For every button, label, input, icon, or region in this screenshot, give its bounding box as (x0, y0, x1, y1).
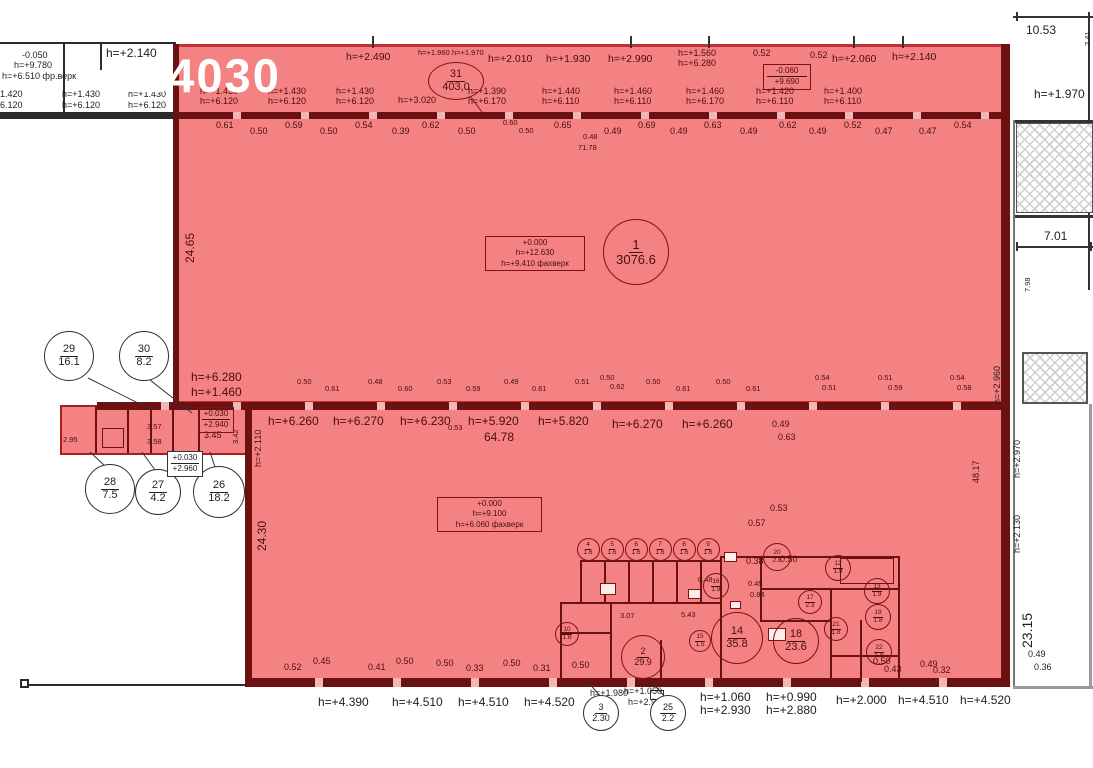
elevation-line: +0.030 (171, 453, 199, 464)
elevation-tag-box: +0.030+2.960 (167, 451, 203, 477)
elevation-tag-box: +0.030+2.940 (198, 407, 234, 433)
elevation-tag-box: +0.000h=+12.630h=+9.410 фахверк (485, 236, 585, 271)
elevation-line: +0.000 (441, 499, 538, 509)
watermark-text: 224030 (112, 48, 281, 103)
elevation-line: +0.030 (202, 409, 230, 420)
elevation-line: +2.960 (171, 464, 199, 474)
tag-boxes-layer: +0.000h=+12.630h=+9.410 фахверк+0.000h=+… (0, 0, 1093, 768)
elevation-line: h=+9.410 фахверк (489, 259, 581, 269)
elevation-line: -0.060 (767, 66, 807, 77)
elevation-line: +0.000 (489, 238, 581, 248)
elevation-line: +9.690 (767, 77, 807, 87)
floor-plan-drawing: -0.050h=+9.780h=+6.510 фр.веркh=+2.1401.… (0, 0, 1093, 768)
elevation-tag-box: -0.060+9.690 (763, 64, 811, 90)
elevation-line: h=+12.630 (489, 248, 581, 258)
elevation-line: +2.940 (202, 420, 230, 430)
elevation-line: h=+6.060 фахверк (441, 520, 538, 530)
elevation-tag-box: +0.000h=+9.100h=+6.060 фахверк (437, 497, 542, 532)
elevation-line: h=+9.100 (441, 509, 538, 519)
